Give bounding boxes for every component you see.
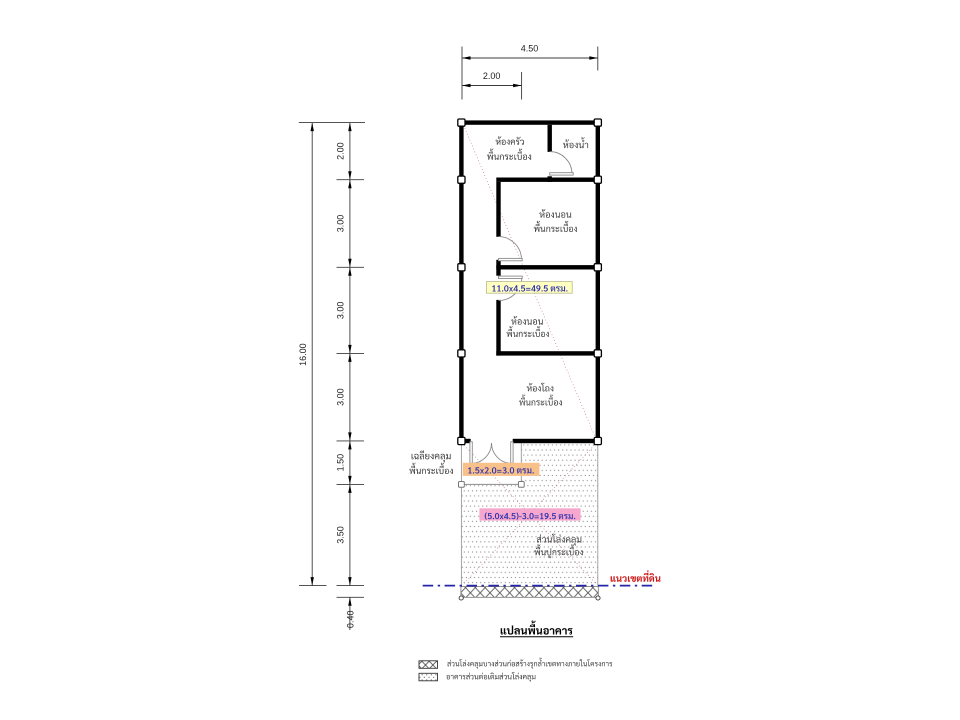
svg-text:0.40: 0.40 bbox=[346, 611, 356, 629]
svg-text:4.50: 4.50 bbox=[521, 44, 539, 54]
svg-text:3.00: 3.00 bbox=[336, 388, 346, 406]
svg-text:16.00: 16.00 bbox=[298, 343, 308, 366]
svg-text:2.00: 2.00 bbox=[336, 142, 346, 160]
svg-text:3.50: 3.50 bbox=[336, 526, 346, 544]
svg-text:1.50: 1.50 bbox=[336, 454, 346, 472]
svg-text:3.00: 3.00 bbox=[336, 215, 346, 233]
svg-text:2.00: 2.00 bbox=[483, 71, 501, 81]
svg-text:3.00: 3.00 bbox=[336, 302, 346, 320]
